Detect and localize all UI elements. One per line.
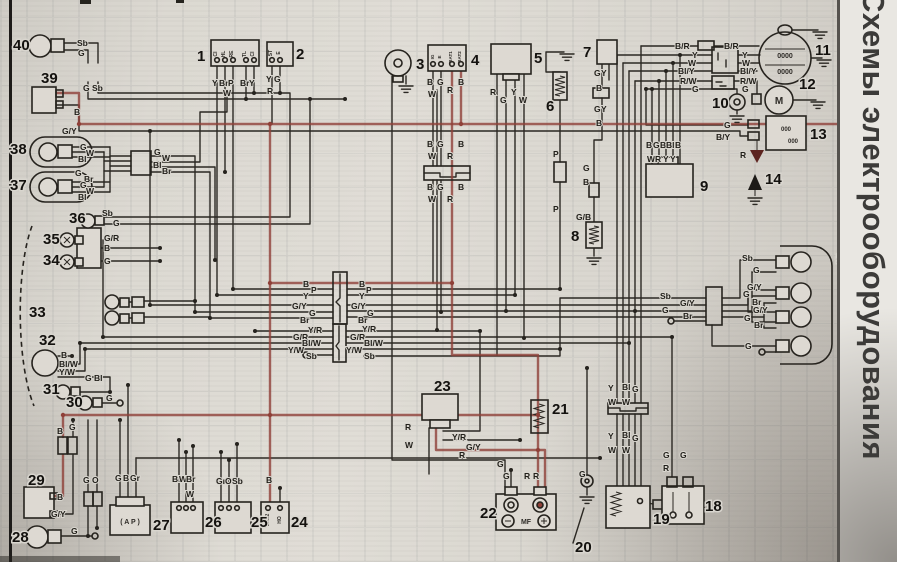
coil-loop <box>778 25 792 35</box>
wire-junction <box>158 246 162 250</box>
connector-box <box>393 76 403 82</box>
wire-color-label: G <box>83 475 90 485</box>
wire-color-label: B <box>458 182 464 192</box>
wire-color-label: Sb <box>77 38 88 48</box>
wire-junction <box>148 129 152 133</box>
wire-color-label: Y <box>359 291 365 301</box>
component-text: MF <box>521 519 532 526</box>
component-box <box>422 394 458 420</box>
wire-color-label: W <box>622 445 631 455</box>
component-text: E <box>437 55 442 58</box>
wire-color-label: G <box>662 305 669 315</box>
wire-color-label: Y <box>266 74 272 84</box>
wire-color-label: P <box>553 204 559 214</box>
component-circle <box>585 479 589 483</box>
arrow-symbol <box>748 174 762 190</box>
wire-junction <box>633 309 637 313</box>
component-box <box>503 74 519 80</box>
component-text: IG <box>430 54 435 59</box>
wire-color-label: G <box>115 473 122 483</box>
wire-color-label: B <box>359 279 365 289</box>
wire-color-label: B <box>104 243 110 253</box>
component-box <box>505 487 517 495</box>
wire-junction <box>504 309 508 313</box>
wire-junction <box>184 450 188 454</box>
wire-color-label: R <box>490 87 496 97</box>
wire-color-label: Sb <box>92 83 103 93</box>
wire-color-label: G <box>594 68 601 78</box>
wire-color-label: G <box>437 77 444 87</box>
connector-box <box>58 437 67 454</box>
wire-junction <box>278 91 282 95</box>
component-number: 13 <box>810 126 827 143</box>
wire-color-label: R <box>740 150 746 160</box>
connector-box <box>68 437 77 454</box>
component-box <box>116 497 144 506</box>
component-number: 26 <box>205 514 222 531</box>
bulb-base <box>51 39 64 52</box>
wire-color-label: G/B <box>576 212 591 222</box>
wire-color-label: Bl <box>78 154 87 164</box>
component-number: 19 <box>653 511 670 528</box>
bulb-base <box>776 256 789 268</box>
wire-color-label: B <box>583 177 589 187</box>
connector-box <box>589 183 599 197</box>
wire <box>546 52 564 72</box>
wire-junction <box>278 486 282 490</box>
wire-junction <box>148 303 152 307</box>
wire <box>336 326 339 360</box>
wiring-diagram: 00000000M000000( A P )MFCIHLRETLCISTEIGE… <box>0 0 897 562</box>
wire-color-label: G <box>503 471 510 481</box>
wire-color-label: B <box>458 139 464 149</box>
wire-color-label: B <box>74 107 80 117</box>
bulb-base <box>48 530 61 543</box>
bulb <box>105 311 119 325</box>
wire-color-label: B <box>427 139 433 149</box>
wire-color-label: R <box>405 422 411 432</box>
wire-junction <box>478 329 482 333</box>
wire-color-label: G <box>437 182 444 192</box>
component-text: 000 <box>788 139 799 145</box>
wire-junction <box>343 97 347 101</box>
arrow-symbol <box>750 150 764 163</box>
wire-junction-red <box>268 281 272 285</box>
wire-color-label: Gr <box>130 473 141 483</box>
component-number: 11 <box>815 42 831 59</box>
connector-box <box>748 132 759 140</box>
wire-color-label: G <box>663 450 670 460</box>
wire-color-label: B <box>427 77 433 87</box>
wire-color-label: W <box>608 397 617 407</box>
wire-color-label: R <box>447 151 453 161</box>
open-connector-ring <box>92 533 98 539</box>
wire-junction <box>71 418 75 422</box>
component-circle <box>394 59 402 67</box>
bulb <box>29 35 51 57</box>
bulb-base <box>58 180 72 193</box>
wire-color-label: W <box>186 489 195 499</box>
wire-junction <box>664 69 668 73</box>
wire-color-label: W <box>223 88 232 98</box>
wire-color-label: G <box>753 265 760 275</box>
wire-junction <box>193 310 197 314</box>
wire-junction <box>193 299 197 303</box>
wire-junction <box>244 97 248 101</box>
bulb-base <box>776 311 789 323</box>
bulb <box>791 307 811 327</box>
connector-box <box>752 94 761 104</box>
wire-color-label: B <box>675 140 681 150</box>
wire-color-label: G/R <box>350 332 365 342</box>
wire-color-label: G <box>632 384 639 394</box>
open-connector-ring <box>668 318 674 324</box>
wire-color-label: Br <box>683 311 693 321</box>
component-circle <box>537 502 543 508</box>
wire-color-label: W <box>428 194 437 204</box>
wire <box>55 105 748 136</box>
wire-color-label: G <box>78 48 85 58</box>
wire-color-label: G <box>594 104 601 114</box>
component-number: 12 <box>799 76 816 93</box>
wire-color-label: W <box>428 151 437 161</box>
component-number: 24 <box>291 514 308 531</box>
wire-junction <box>177 438 181 442</box>
wire-color-label: Sb <box>364 351 375 361</box>
wire-junction <box>83 347 87 351</box>
wire-color-label: Bl <box>94 373 103 383</box>
wire-color-label: R <box>663 463 669 473</box>
component-text: RE <box>229 50 235 58</box>
wire-junction <box>439 310 443 314</box>
wire-color-label: Br <box>186 474 196 484</box>
wire-junction <box>215 293 219 297</box>
component-text: ST <box>268 50 274 56</box>
wire-color-label: Br <box>300 315 310 325</box>
component-number: 39 <box>41 70 58 87</box>
wire-color-label: Y <box>608 383 614 393</box>
wire-junction <box>657 79 661 83</box>
wire-color-label: B <box>427 182 433 192</box>
component-number: 34 <box>43 252 60 269</box>
wire-color-label: G <box>83 83 90 93</box>
wire-junction <box>101 335 105 339</box>
wire-color-label: B <box>123 473 129 483</box>
wire-color-label: G <box>154 147 161 157</box>
wire-color-label: Y <box>249 78 255 88</box>
wire-junction <box>118 418 122 422</box>
wire-color-label: Y <box>601 104 607 114</box>
wire-color-label: Sb <box>232 476 243 486</box>
bulb-base <box>776 340 789 352</box>
component-number: 35 <box>43 231 60 248</box>
wire-color-label: G <box>104 256 111 266</box>
open-connector-ring <box>117 400 123 406</box>
component-text: 0000 <box>777 69 793 76</box>
wire-color-label: Y <box>663 154 669 164</box>
wire-color-label: B <box>596 118 602 128</box>
wire-junction <box>86 534 90 538</box>
wire-color-label: Bl/W <box>364 338 384 348</box>
component-number: 1 <box>197 48 205 65</box>
wire-color-label: G <box>743 289 750 299</box>
component-text: M <box>775 96 783 107</box>
wire-color-label: G <box>724 120 731 130</box>
component-number: 30 <box>66 394 83 411</box>
wire-junction <box>518 438 522 442</box>
bulb-base <box>75 236 83 244</box>
wire-color-label: Bl/Y <box>740 66 757 76</box>
wire-color-label: R <box>447 85 453 95</box>
wire-color-label: Br <box>754 320 764 330</box>
component-number: 20 <box>575 539 592 556</box>
component-box <box>646 164 693 197</box>
component-text: HO <box>277 516 283 524</box>
wire-junction-red <box>77 122 81 126</box>
bulb <box>791 336 811 356</box>
component-number: 23 <box>434 378 451 395</box>
wire-color-label: B/R <box>675 41 690 51</box>
bulb <box>39 178 57 196</box>
wire-color-label: Y/R <box>308 325 322 335</box>
connector-box <box>706 287 722 325</box>
wire-color-label: B <box>458 77 464 87</box>
component-box <box>491 44 531 74</box>
wire-junction-red <box>459 122 463 126</box>
component-box <box>430 420 450 428</box>
wire-junction <box>223 170 227 174</box>
component-box <box>597 40 617 64</box>
wire-color-label: B <box>57 426 63 436</box>
wire-junction <box>95 526 99 530</box>
component-number: 32 <box>39 332 56 349</box>
wire-color-label: O <box>225 476 232 486</box>
connector-box <box>131 151 151 175</box>
wire-color-label: Bl <box>666 140 675 150</box>
component-number: 28 <box>12 529 29 546</box>
wire <box>151 167 215 260</box>
wire-color-label: Y/R <box>452 432 466 442</box>
component-number: 27 <box>153 517 170 534</box>
component-number: 29 <box>28 472 45 489</box>
wire-color-label: B <box>266 475 272 485</box>
component-text: HL <box>221 51 227 58</box>
bulb <box>791 283 811 303</box>
wire-color-label: P <box>228 78 234 88</box>
wire-color-label: G <box>85 373 92 383</box>
component-text: ( A P ) <box>120 519 140 526</box>
wire-color-label: G/Y <box>292 301 307 311</box>
component-number: 9 <box>700 178 708 195</box>
wire-color-label: G/Y <box>62 126 77 136</box>
component-text: TL <box>242 51 248 57</box>
component-text: CI <box>250 51 256 57</box>
wire-color-label: G <box>106 393 113 403</box>
component-circle <box>32 350 58 376</box>
wire-color-label: G/Y <box>680 298 695 308</box>
wire-junction <box>513 293 517 297</box>
connector-box <box>132 313 144 323</box>
wire-color-label: W <box>405 440 414 450</box>
wire-junction <box>108 390 112 394</box>
component-text: 0000 <box>777 53 793 60</box>
wire <box>371 298 706 356</box>
component-text: 000 <box>781 127 792 133</box>
wire-color-label: W <box>86 148 95 158</box>
wire-junction <box>670 335 674 339</box>
wire-color-label: P <box>366 285 372 295</box>
bulb <box>39 143 57 161</box>
wire-junction <box>158 259 162 263</box>
wire-junction-red <box>450 281 454 285</box>
wire-color-label: Y <box>601 68 607 78</box>
connector-box <box>84 492 93 506</box>
component-number: 2 <box>296 46 304 63</box>
wire-color-label: Sb <box>306 351 317 361</box>
wire-junction-red <box>61 413 65 417</box>
wire-color-label: G <box>680 450 687 460</box>
wire-junction <box>509 468 513 472</box>
wire-junction <box>678 53 682 57</box>
wire-junction <box>213 258 217 262</box>
connector-box <box>712 76 734 89</box>
wire-color-label: Y <box>670 154 676 164</box>
bulb-base <box>58 145 72 158</box>
wire-color-label: W <box>608 445 617 455</box>
page-title: Схемы электрооборудования <box>855 0 891 562</box>
wire <box>105 99 310 224</box>
wire-color-label: G <box>579 469 586 479</box>
component-number: 14 <box>765 171 782 188</box>
bulb <box>105 295 119 309</box>
component-text: BAT2 <box>457 51 462 63</box>
wire-color-label: Y <box>511 87 517 97</box>
component-number: 37 <box>10 177 27 194</box>
wire-color-label: O <box>92 475 99 485</box>
wire-color-label: Bl <box>78 192 87 202</box>
component-box <box>32 87 56 113</box>
wire-junction <box>191 444 195 448</box>
wire-junction <box>126 383 130 387</box>
wire-color-label: Y <box>303 291 309 301</box>
bulb-base <box>120 298 129 307</box>
wire-color-label: B <box>303 279 309 289</box>
wire <box>98 82 290 217</box>
wire-color-label: B <box>596 83 602 93</box>
wire <box>608 408 648 411</box>
wire-junction-red <box>268 413 272 417</box>
wire <box>217 63 333 295</box>
wire-color-label: W <box>622 397 631 407</box>
wire-color-label: G <box>497 459 504 469</box>
wire-junction <box>219 450 223 454</box>
wire-junction <box>227 458 231 462</box>
wire-color-label: G <box>274 74 281 84</box>
wire <box>573 508 584 543</box>
component-number: 25 <box>251 514 268 531</box>
wire-color-label: Sb <box>742 253 753 263</box>
wire-junction <box>671 61 675 65</box>
wire-color-label: P <box>553 149 559 159</box>
wire <box>424 173 470 177</box>
wire-color-label: W <box>162 153 171 163</box>
wire-junction-red <box>536 448 540 452</box>
component-box <box>534 487 546 495</box>
wire-color-label: G/R <box>104 233 119 243</box>
wire-color-label: Sb <box>102 208 113 218</box>
wire-color-label: R <box>447 194 453 204</box>
component-number: 40 <box>13 37 30 54</box>
component-circle <box>385 50 411 76</box>
wire-color-label: P <box>311 285 317 295</box>
bulb-base <box>776 287 789 299</box>
wire-color-label: R <box>533 471 539 481</box>
wire-color-label: G <box>113 218 120 228</box>
wire-color-label: Y <box>608 431 614 441</box>
wire-junction <box>627 341 631 345</box>
wire-color-label: G <box>692 84 699 94</box>
wire-color-label: G <box>653 140 660 150</box>
wire-junction <box>598 456 602 460</box>
wire-color-label: R <box>459 450 465 460</box>
wire-color-label: G/Y <box>466 442 481 452</box>
wire-color-label: R <box>267 86 273 96</box>
wire-color-label: B <box>57 492 63 502</box>
component-number: 31 <box>43 381 60 398</box>
wire-color-label: Br <box>162 166 172 176</box>
wire-color-label: Bl <box>153 160 162 170</box>
wire-junction-red <box>536 413 540 417</box>
wire-color-label: G <box>367 308 374 318</box>
wire-color-label: Bl <box>622 382 631 392</box>
wire-junction <box>585 366 589 370</box>
wire-junction <box>70 354 74 358</box>
wire-junction <box>558 347 562 351</box>
wire-color-label: Y <box>212 78 218 88</box>
component-number: 22 <box>480 505 497 522</box>
wire-junction <box>308 97 312 101</box>
wire-color-label: W <box>86 186 95 196</box>
wire-color-label: G <box>75 168 82 178</box>
connector-box <box>132 297 144 307</box>
wire-color-label: R <box>655 154 661 164</box>
wire-color-label: G <box>742 84 749 94</box>
wire-junction <box>522 336 526 340</box>
bulb <box>791 252 811 272</box>
wire-junction <box>650 87 654 91</box>
bulb-base <box>120 314 129 323</box>
component-text: CI <box>213 51 219 57</box>
component-number: 3 <box>416 56 424 73</box>
wire-color-label: G <box>71 526 78 536</box>
wire-color-label: G <box>309 308 316 318</box>
wire-color-label: Bl <box>622 430 631 440</box>
wire-color-label: W <box>428 89 437 99</box>
component-number: 4 <box>471 52 480 69</box>
wire-junction-red <box>268 122 272 126</box>
wire-color-label: Sb <box>660 291 671 301</box>
wire-color-label: R <box>524 471 530 481</box>
wire-color-label: G <box>745 341 752 351</box>
wire-junction <box>208 316 212 320</box>
wire <box>56 455 73 514</box>
wire <box>233 63 333 289</box>
wire-color-label: G/Y <box>51 509 66 519</box>
wire-color-label: G <box>437 139 444 149</box>
component-circle <box>734 99 740 105</box>
wire-junction <box>252 91 256 95</box>
wire-color-label: G <box>500 95 507 105</box>
